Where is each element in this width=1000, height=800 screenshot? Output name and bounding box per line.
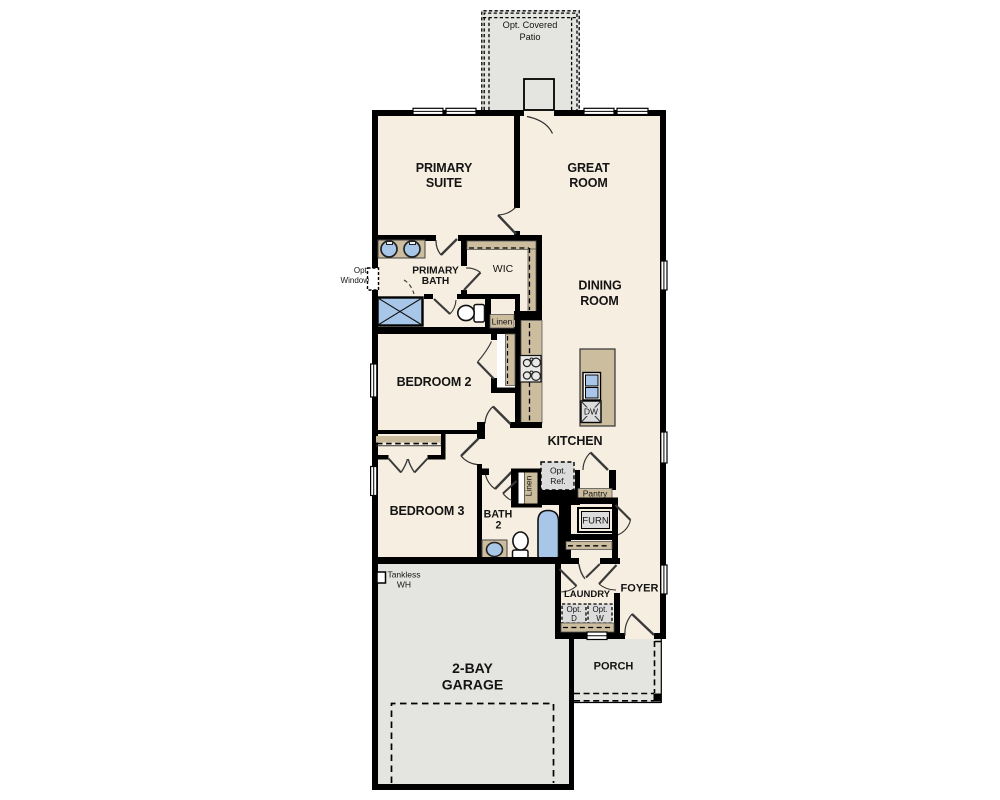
svg-text:Opt. Covered: Opt. Covered [503,20,558,30]
svg-text:LAUNDRY: LAUNDRY [564,589,611,600]
svg-text:BATH: BATH [422,276,450,287]
svg-text:ROOM: ROOM [580,294,619,308]
svg-text:Window: Window [341,276,370,285]
svg-text:W: W [596,614,604,623]
svg-text:ROOM: ROOM [569,176,608,190]
svg-text:KITCHEN: KITCHEN [548,434,603,448]
svg-text:Linen: Linen [524,475,534,496]
svg-text:PRIMARY: PRIMARY [416,161,473,175]
svg-text:PRIMARY: PRIMARY [412,265,459,276]
svg-text:Ref.: Ref. [550,476,566,486]
svg-text:BEDROOM 2: BEDROOM 2 [397,375,472,389]
svg-text:Tankless: Tankless [387,570,420,580]
svg-text:Opt.: Opt. [354,266,369,275]
svg-text:Linen: Linen [492,317,513,327]
svg-text:DW: DW [584,407,598,417]
svg-text:Patio: Patio [520,32,541,42]
svg-text:DINING: DINING [578,279,621,293]
svg-text:GREAT: GREAT [567,161,610,175]
svg-text:GARAGE: GARAGE [442,677,503,693]
svg-text:D: D [571,614,577,623]
svg-text:WH: WH [397,580,411,590]
svg-text:BEDROOM 3: BEDROOM 3 [390,504,465,518]
svg-text:SUITE: SUITE [426,176,462,190]
svg-text:Pantry: Pantry [583,489,608,499]
svg-text:FURN: FURN [582,516,609,527]
svg-text:Opt.: Opt. [592,605,607,614]
svg-text:2-BAY: 2-BAY [452,660,493,676]
svg-text:PORCH: PORCH [594,661,634,673]
svg-text:Opt.: Opt. [566,605,581,614]
svg-text:2: 2 [496,520,502,532]
svg-text:FOYER: FOYER [621,583,659,595]
svg-text:BATH: BATH [484,508,513,520]
svg-text:Opt.: Opt. [550,466,566,476]
svg-text:WIC: WIC [493,263,514,275]
